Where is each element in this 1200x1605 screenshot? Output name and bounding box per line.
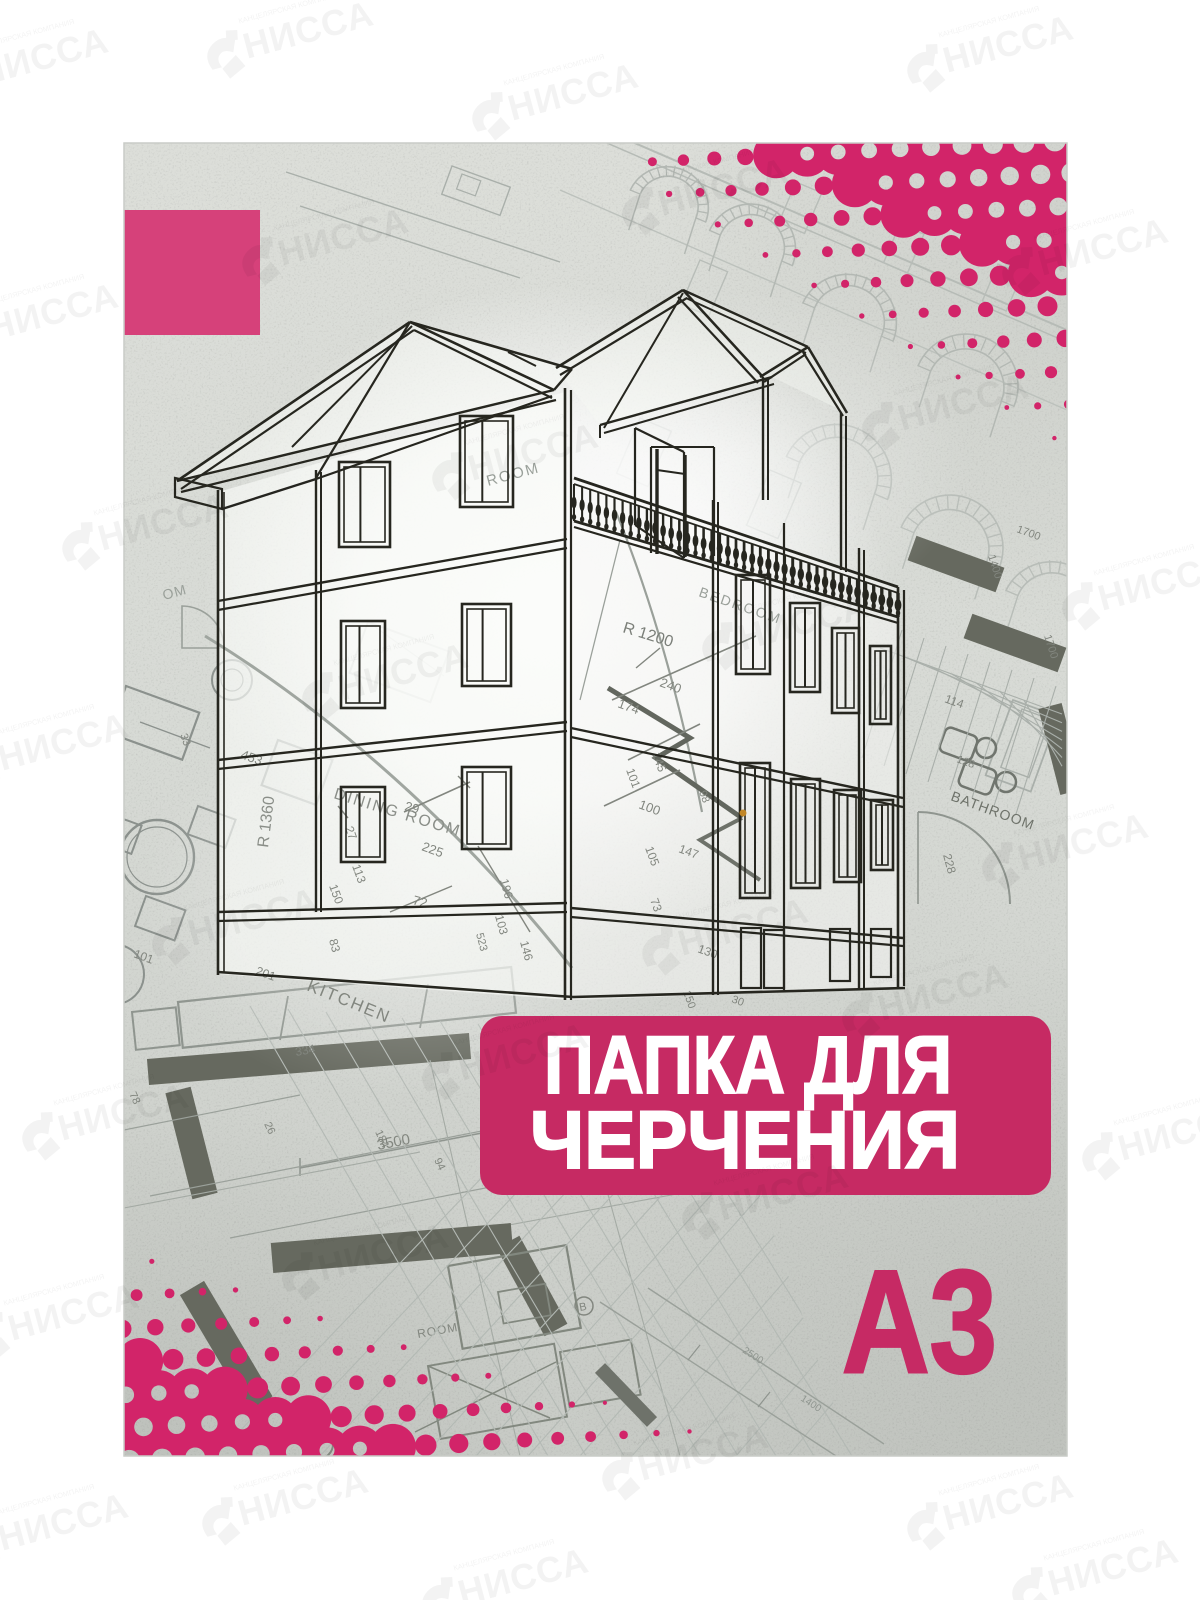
- svg-text:А3: А3: [842, 1240, 997, 1403]
